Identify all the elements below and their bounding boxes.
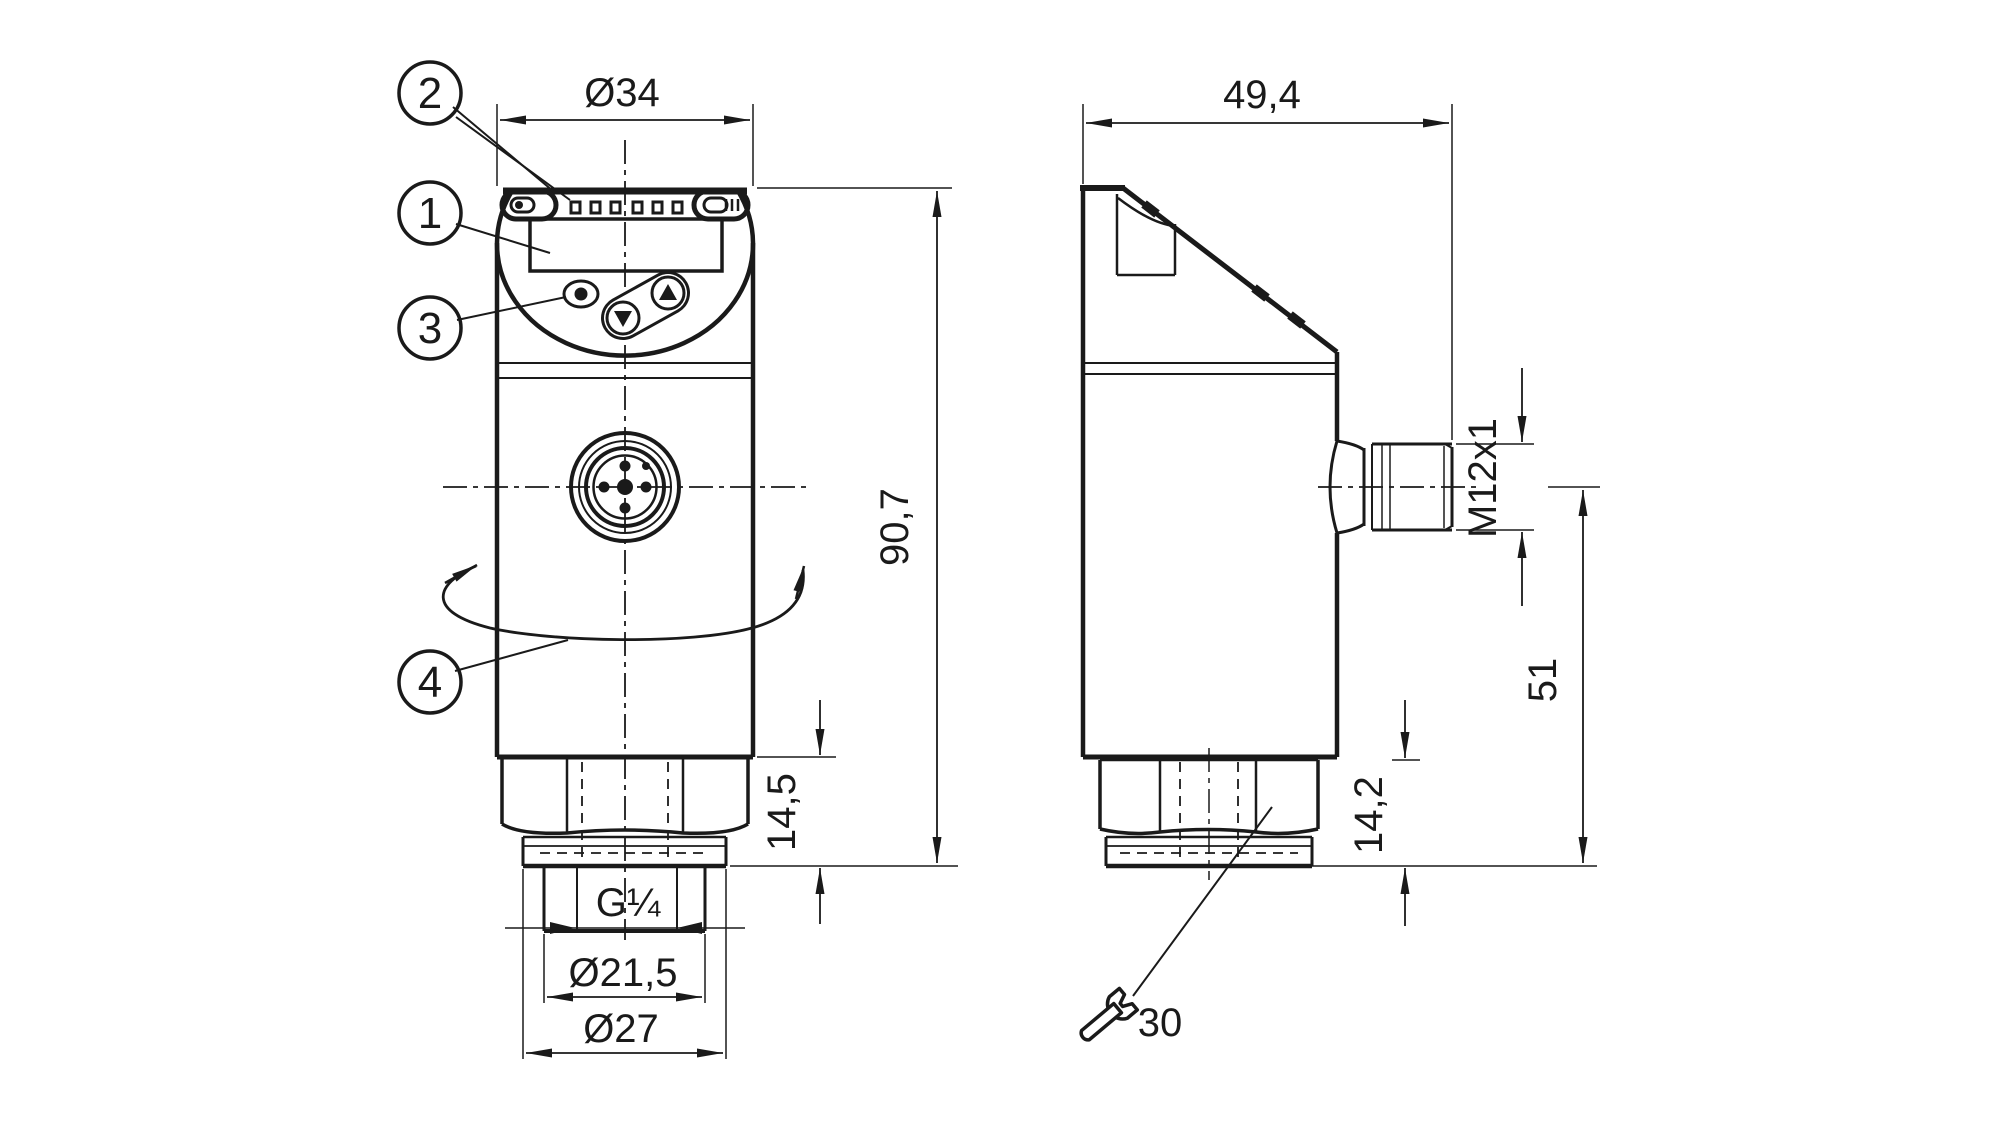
hex-nut-side <box>1100 748 1318 880</box>
dimension-depth <box>1083 104 1452 440</box>
thread-label: G¼ <box>596 881 661 925</box>
callouts <box>399 62 570 713</box>
wrench-size-label: 30 <box>1138 1001 1183 1045</box>
m12-connector-side <box>1318 441 1478 533</box>
side-view <box>1080 188 1478 880</box>
dim-width-label: Ø34 <box>584 71 660 115</box>
led-indicators <box>571 202 682 213</box>
dimension-height <box>730 188 958 866</box>
housing-body-side <box>1080 188 1337 757</box>
display-window <box>530 219 722 271</box>
wrench-icon <box>1074 988 1137 1048</box>
technical-drawing: Ø34 90,7 14,5 G¼ Ø21,5 Ø27 49,4 M12x1 51… <box>0 0 2000 1127</box>
pushbuttons <box>564 277 684 334</box>
m12-connector-front <box>571 433 679 541</box>
dim-axis-height-label: 51 <box>1521 658 1565 703</box>
dim-height-label: 90,7 <box>873 488 917 566</box>
callout-1-label: 1 <box>418 189 442 238</box>
callout-4-label: 4 <box>418 658 442 707</box>
dim-hex-side-label: 14,2 <box>1347 776 1391 854</box>
labels: Ø34 90,7 14,5 G¼ Ø21,5 Ø27 49,4 M12x1 51… <box>418 69 1565 1051</box>
drawing-page: Ø34 90,7 14,5 G¼ Ø21,5 Ø27 49,4 M12x1 51… <box>0 0 2000 1127</box>
dim-collar-label: Ø27 <box>583 1007 659 1051</box>
callout-2-label: 2 <box>418 69 442 118</box>
front-dimensions <box>497 104 958 1059</box>
front-view <box>443 140 810 940</box>
dim-depth-label: 49,4 <box>1223 73 1301 117</box>
callout-3-label: 3 <box>418 304 442 353</box>
connector-thread-label: M12x1 <box>1461 418 1505 538</box>
dim-sealing-label: Ø21,5 <box>569 951 678 995</box>
dim-hex-front-label: 14,5 <box>760 773 804 851</box>
dimension-hex-height-side <box>1392 700 1420 926</box>
